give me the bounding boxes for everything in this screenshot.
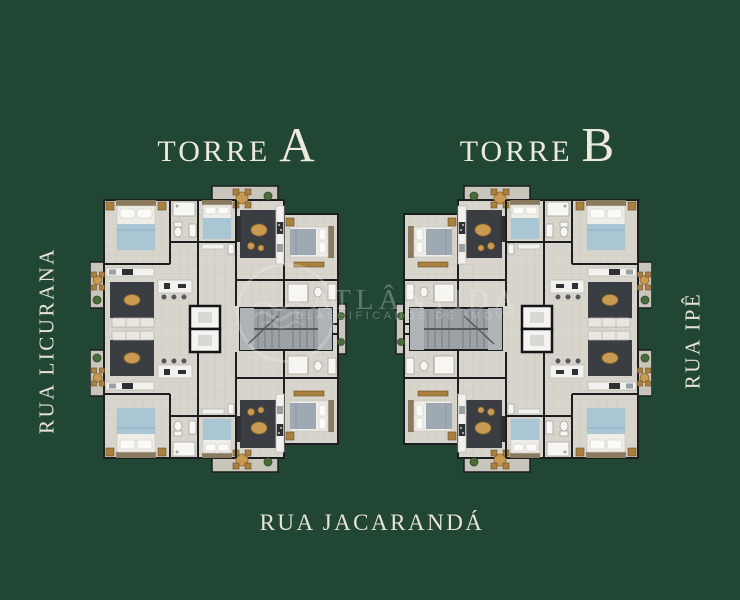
street-label-left: RUA LICURANA (35, 231, 60, 451)
street-label-right: RUA IPÊ (681, 231, 706, 451)
torre-a-floorplan (90, 184, 350, 474)
street-label-bottom: RUA JACARANDÁ (212, 510, 532, 536)
tower-b-label: TORRE B (442, 116, 632, 173)
tower-b-letter: B (582, 116, 615, 173)
tower-a-label: TORRE A (141, 116, 331, 173)
tower-b-prefix: TORRE (460, 135, 573, 169)
tower-a-prefix: TORRE (157, 135, 270, 169)
torre-b-floorplan (392, 184, 652, 474)
tower-a-letter: A (279, 116, 314, 173)
